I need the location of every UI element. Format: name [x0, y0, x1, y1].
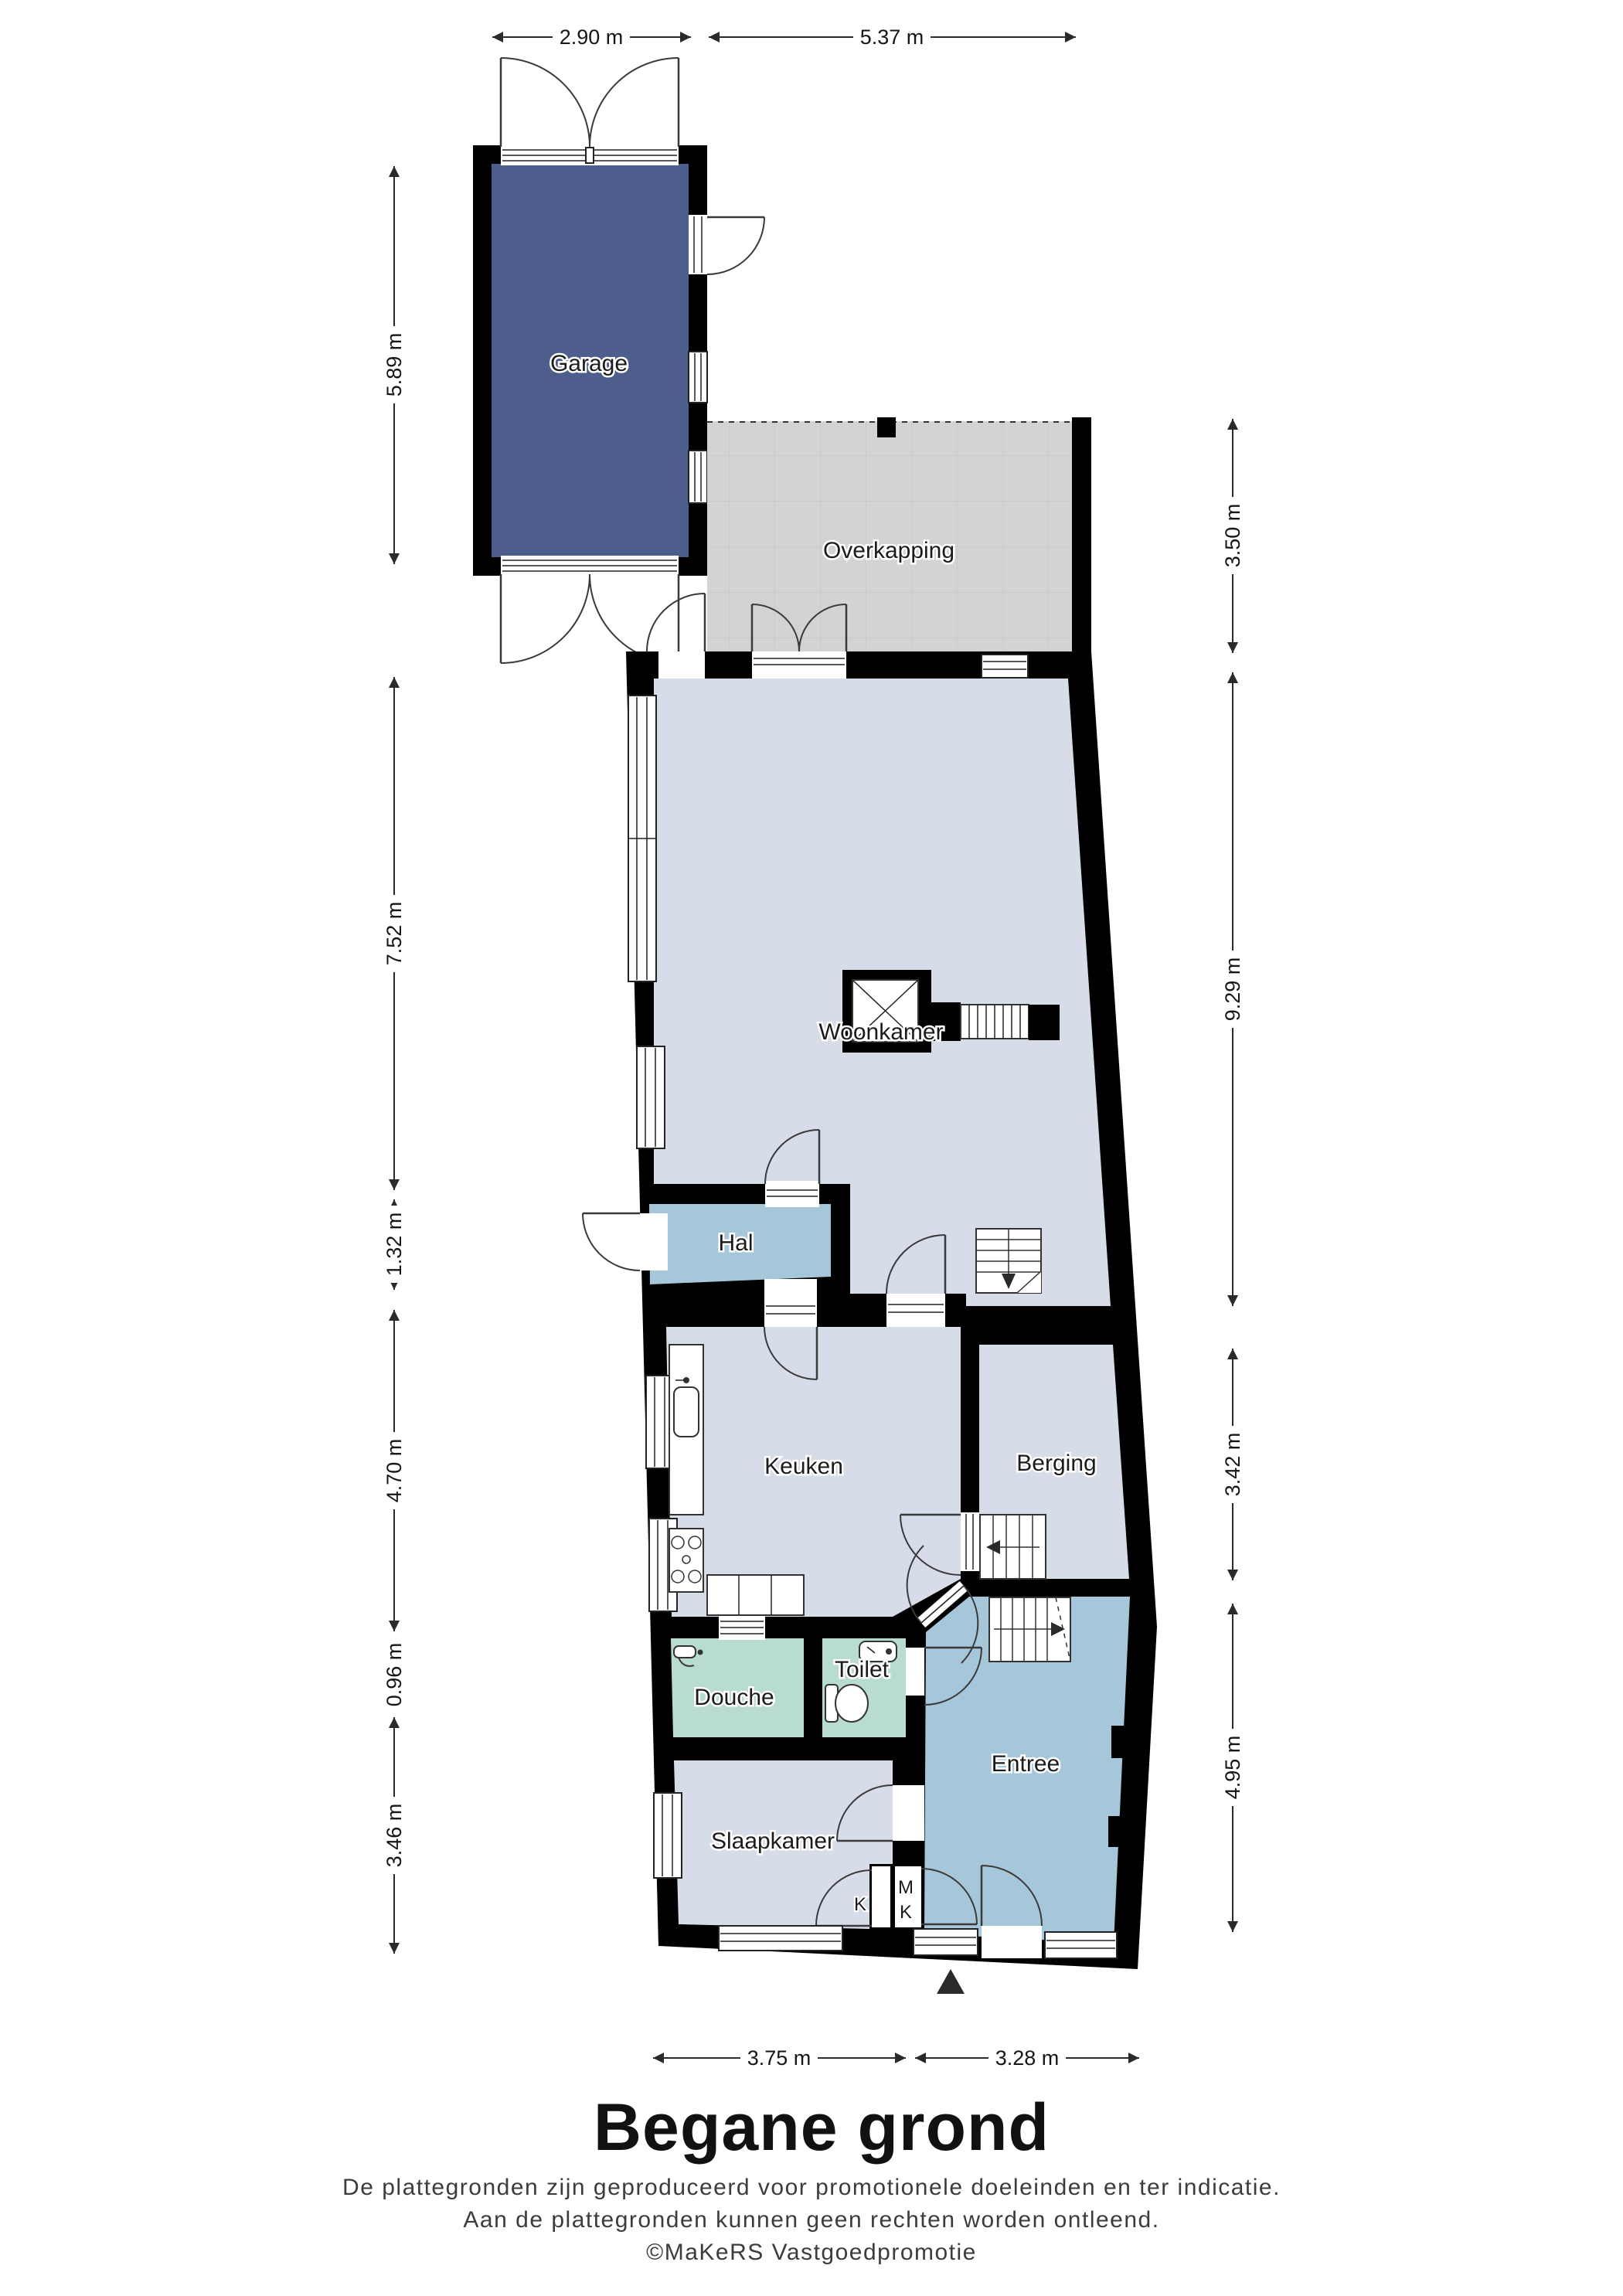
douche-label: Douche — [694, 1685, 774, 1710]
svg-text:3.75 m: 3.75 m — [747, 2046, 811, 2070]
dim-right-0: 3.50 m — [1220, 419, 1245, 653]
svg-text:3.42 m: 3.42 m — [1221, 1433, 1244, 1497]
berging-label: Berging — [1016, 1451, 1096, 1476]
garage-side-door — [689, 215, 764, 274]
stove-icon — [669, 1529, 703, 1592]
slaapkamer-label: Slaapkamer — [711, 1828, 835, 1854]
svg-text:3.50 m: 3.50 m — [1221, 504, 1244, 568]
dim-left-4: 0.96 m — [382, 1636, 407, 1713]
woonkamer-window-2 — [637, 1046, 665, 1148]
disclaimer-line-2: Aan de plattegronden kunnen geen rechten… — [463, 2207, 1159, 2233]
dim-left-2: 1.32 m — [382, 1199, 407, 1290]
credit-line: ©MaKeRS Vastgoedpromotie — [646, 2240, 977, 2265]
woonkamer-window-long — [628, 696, 656, 981]
side-entrance-door — [583, 1213, 668, 1270]
kitchen-counter — [669, 1345, 703, 1515]
overkapping-floor — [707, 421, 1072, 653]
entree-label: Entree — [992, 1751, 1060, 1777]
wall-niche-2 — [1108, 1816, 1125, 1847]
dim-right-3: 4.95 m — [1220, 1604, 1245, 1932]
closet-k-label: K — [854, 1894, 866, 1915]
disclaimer-line-1: De plattegronden zijn geproduceerd voor … — [342, 2175, 1281, 2200]
overkapping-area: Overkapping — [707, 417, 1091, 653]
svg-text:0.96 m: 0.96 m — [383, 1643, 406, 1707]
page-title: Begane grond — [594, 2090, 1050, 2165]
dim-top-0: 2.90 m — [492, 25, 691, 49]
slaapkamer-window-bottom — [719, 1926, 842, 1951]
toilet-label: Toilet — [835, 1657, 890, 1682]
keuken-label: Keuken — [764, 1454, 843, 1479]
woonkamer-label: Woonkamer — [818, 1019, 943, 1045]
closet-k — [872, 1866, 890, 1927]
dim-right-2: 3.42 m — [1220, 1349, 1245, 1580]
dim-top-1: 5.37 m — [709, 25, 1076, 49]
sink-icon — [674, 1387, 699, 1437]
svg-text:3.28 m: 3.28 m — [995, 2046, 1060, 2070]
top-wall-window — [982, 655, 1028, 678]
dim-left-0: 5.89 m — [382, 166, 407, 564]
wall-niche-1 — [1111, 1726, 1128, 1758]
slaapkamer-window-side — [654, 1793, 682, 1878]
garage-door-north — [501, 58, 679, 165]
svg-text:1.32 m: 1.32 m — [383, 1213, 406, 1277]
garage-window-2 — [689, 451, 707, 503]
closet-mk-k-label: K — [900, 1902, 912, 1923]
radiator — [961, 1005, 1060, 1040]
dim-left-3: 4.70 m — [382, 1310, 407, 1631]
douche-opening — [719, 1615, 765, 1640]
overkapping-label: Overkapping — [823, 538, 954, 563]
garage-door-south — [501, 556, 679, 663]
garage-label: Garage — [550, 351, 628, 376]
svg-text:2.90 m: 2.90 m — [560, 26, 624, 49]
svg-text:3.46 m: 3.46 m — [383, 1804, 406, 1868]
hal-label: Hal — [718, 1230, 753, 1256]
floorplan-canvas: Garage Overkapping — [0, 0, 1623, 2296]
svg-text:5.89 m: 5.89 m — [383, 333, 406, 397]
svg-text:9.29 m: 9.29 m — [1221, 958, 1244, 1022]
dim-right-1: 9.29 m — [1220, 672, 1245, 1306]
stairs-woonkamer — [976, 1229, 1041, 1293]
entree-window-bottom-right — [1045, 1932, 1117, 1958]
stairs-entree — [989, 1597, 1070, 1662]
entree-window-bottom-left — [914, 1929, 978, 1955]
overkapping-post — [877, 417, 896, 437]
closet-mk-m-label: M — [898, 1877, 914, 1898]
kitchen-appliances — [707, 1575, 804, 1615]
svg-text:5.37 m: 5.37 m — [860, 26, 924, 49]
dim-left-1: 7.52 m — [382, 677, 407, 1190]
dim-left-5: 3.46 m — [382, 1717, 407, 1954]
toilet-icon — [825, 1685, 868, 1722]
garage-window-1 — [689, 352, 707, 403]
dim-bottom-0: 3.75 m — [653, 2046, 906, 2070]
dim-bottom-1: 3.28 m — [915, 2046, 1139, 2070]
svg-text:4.70 m: 4.70 m — [383, 1439, 406, 1503]
svg-text:7.52 m: 7.52 m — [383, 902, 406, 966]
overkapping-right-wall — [1072, 417, 1091, 653]
entrance-arrow-icon — [937, 1969, 965, 1994]
svg-text:4.95 m: 4.95 m — [1221, 1736, 1244, 1800]
stairs-berging — [980, 1515, 1046, 1579]
